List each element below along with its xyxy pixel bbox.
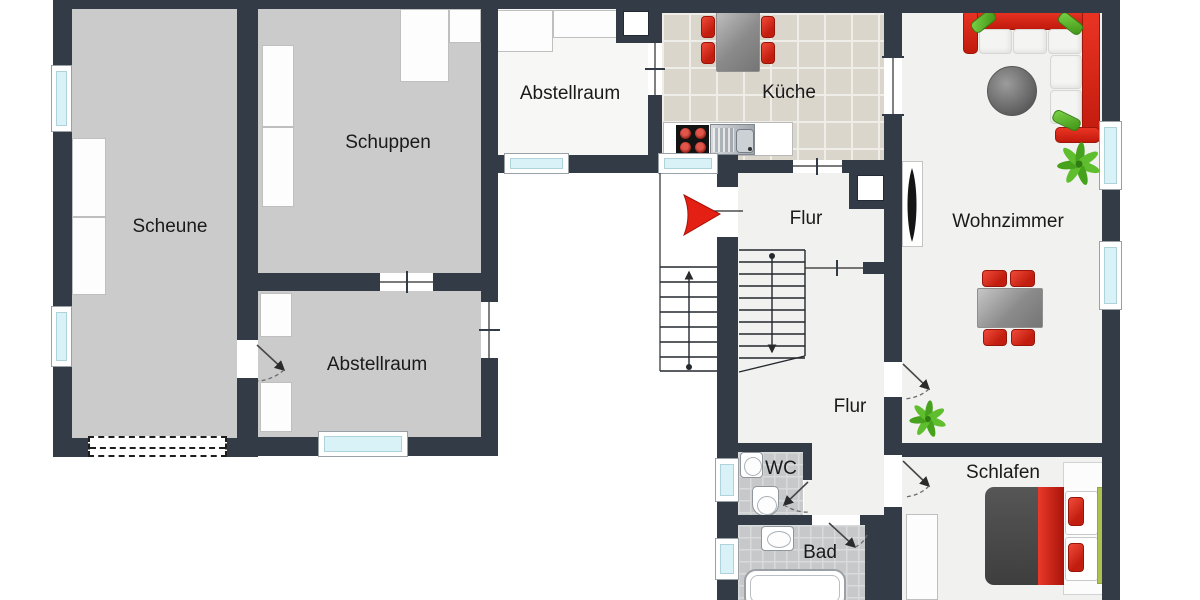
wardrobe <box>906 514 938 600</box>
wall-segment <box>884 397 902 455</box>
wc-sink <box>740 452 763 478</box>
floor-flur <box>738 173 884 443</box>
wall-segment <box>738 515 812 525</box>
chimney-flue <box>623 11 649 36</box>
kitchen-chair <box>701 42 715 64</box>
storage-block <box>72 217 106 295</box>
wall-segment <box>884 115 902 160</box>
bed-cushion <box>1068 497 1084 526</box>
window-glass <box>510 158 563 169</box>
dining-table <box>977 288 1043 328</box>
wall-segment <box>717 237 738 463</box>
barn-gate <box>88 436 227 457</box>
wall-segment <box>237 9 258 340</box>
sofa-back <box>1082 10 1100 143</box>
storage-block <box>260 382 292 432</box>
wall-segment <box>860 515 885 525</box>
storage-block <box>262 45 294 127</box>
wall-opening <box>380 271 433 293</box>
window-glass <box>720 544 734 574</box>
bathtub <box>744 569 846 600</box>
wall-segment <box>902 443 1102 457</box>
storage-block <box>262 127 294 207</box>
kitchen-chair <box>761 16 775 38</box>
toilet <box>752 486 779 516</box>
bathtub-inner <box>750 575 840 600</box>
wall-segment <box>803 443 812 480</box>
wc-sink-basin <box>744 457 762 476</box>
stove <box>676 125 709 156</box>
wall-segment <box>717 578 738 600</box>
coffee-table <box>987 66 1037 116</box>
wall-segment <box>406 437 498 456</box>
burner-icon <box>680 128 691 139</box>
kitchen-sink <box>710 124 755 155</box>
wall-segment <box>53 130 72 308</box>
entrance-arrow-icon <box>684 195 720 235</box>
floor-flur-lower <box>804 443 884 515</box>
wall-segment <box>433 273 481 291</box>
wall-opening <box>882 57 904 115</box>
wall-segment <box>648 95 662 158</box>
storage-block <box>497 10 553 52</box>
burner-icon <box>695 142 706 153</box>
exterior-staircase <box>660 267 717 371</box>
window-glass <box>56 312 67 361</box>
floorplan: Scheune Schuppen Abstellraum Küche Flur … <box>0 0 1200 600</box>
wall-segment <box>865 525 902 600</box>
wall-opening <box>479 302 500 358</box>
wall-segment <box>717 155 738 187</box>
dining-chair <box>1010 270 1035 287</box>
kitchen-chair <box>761 42 775 64</box>
storage-block <box>72 138 106 217</box>
wall-segment <box>738 160 793 173</box>
wall-segment <box>258 437 320 456</box>
chimney-flue <box>857 175 884 201</box>
storage-block <box>400 9 449 82</box>
barn-gate-line <box>90 447 225 449</box>
kitchen-table <box>716 4 760 72</box>
window-glass <box>56 71 67 126</box>
burner-icon <box>695 128 706 139</box>
wall-segment <box>53 0 662 9</box>
window-glass <box>664 158 712 169</box>
wall-segment <box>53 438 88 457</box>
wall-segment <box>884 13 902 57</box>
faucet-icon <box>748 147 752 151</box>
sink-drainer <box>713 128 734 152</box>
dining-chair <box>983 329 1007 346</box>
wall-segment <box>1102 0 1120 125</box>
window-glass <box>720 464 734 496</box>
dining-chair <box>982 270 1007 287</box>
burner-icon <box>680 142 691 153</box>
window-glass <box>1104 127 1117 184</box>
bed-stripe <box>1038 487 1064 585</box>
wall-segment <box>738 443 804 452</box>
window-glass <box>1104 247 1117 304</box>
wall-segment <box>1102 308 1120 600</box>
kitchen-chair <box>701 16 715 38</box>
storage-block <box>449 9 481 43</box>
wall-segment <box>237 378 258 457</box>
toilet-bowl <box>757 496 777 515</box>
dining-chair <box>1011 329 1035 346</box>
bath-sink <box>761 526 794 551</box>
wood-stove-panel <box>902 161 923 247</box>
wall-segment <box>1102 188 1120 245</box>
bath-sink-basin <box>767 531 791 548</box>
bed-cushion <box>1068 543 1084 572</box>
window-glass <box>324 436 402 452</box>
sofa-cushion <box>1050 55 1082 89</box>
wall-segment <box>53 9 72 67</box>
storage-block <box>260 293 292 337</box>
wall-segment <box>648 0 1120 13</box>
wall-segment <box>258 273 380 291</box>
sofa-cushion <box>979 29 1012 54</box>
wall-segment <box>863 262 884 274</box>
wall-segment <box>717 500 738 542</box>
wall-segment <box>884 263 902 362</box>
bed-duvet <box>985 487 1040 585</box>
sofa-cushion <box>1013 29 1047 54</box>
